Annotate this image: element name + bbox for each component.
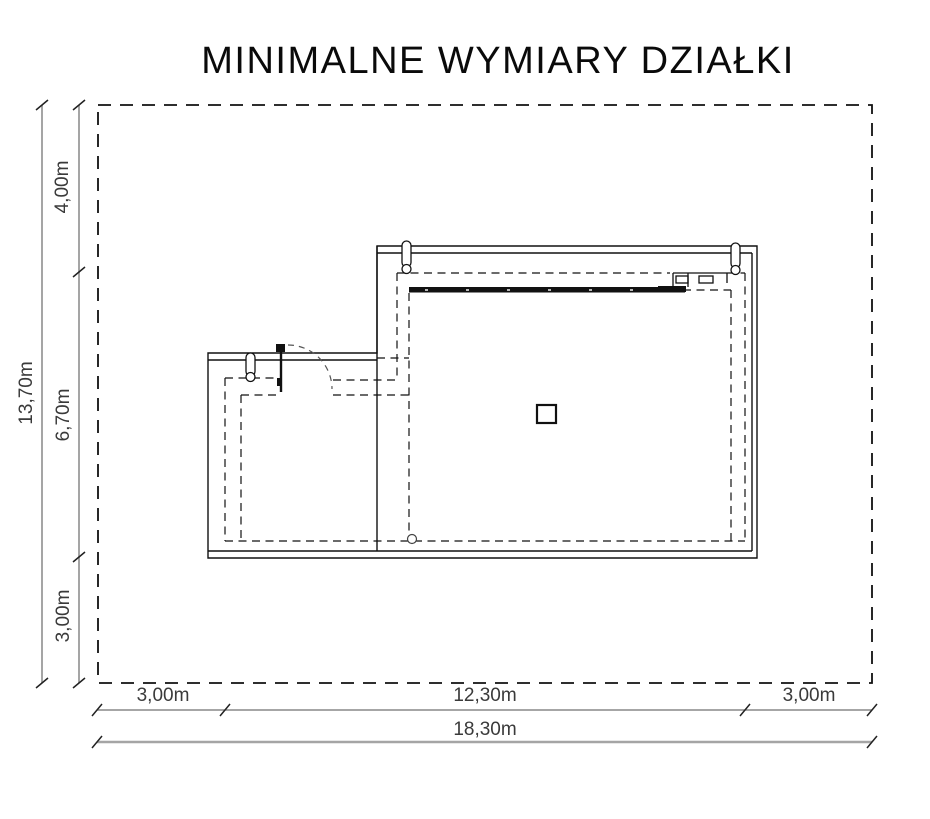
plot-boundary [98,105,872,683]
drain-circle [408,535,417,544]
dim-label-left-4m: 4,00m [52,161,74,214]
chimney-detail [673,273,727,287]
dim-label-bottom-12-3m: 12,30m [453,685,516,707]
dim-label-bottom-total: 18,30m [453,719,516,741]
downspout-main-left [402,241,411,274]
dim-label-left-total: 13,70m [16,361,38,424]
dim-label-left-3m: 3,00m [53,590,75,643]
glazed-wall-bar [409,286,686,293]
dim-label-bottom-3m-right: 3,00m [783,685,836,707]
dim-label-left-6-7m: 6,70m [53,389,75,442]
door-strike [277,378,281,386]
site-plan-drawing: MINIMALNE WYMIARY DZIAŁKI [0,0,930,819]
building-wall-dashed [225,273,745,541]
downspout-garage [246,353,255,382]
door-hinge [276,344,285,352]
entry-door [276,344,332,392]
downspout-main-right [731,243,740,275]
dim-label-bottom-3m-left: 3,00m [137,685,190,707]
skylight-square [537,405,556,423]
door-swing-arc [288,345,332,389]
building-eaves-outline [208,246,757,558]
